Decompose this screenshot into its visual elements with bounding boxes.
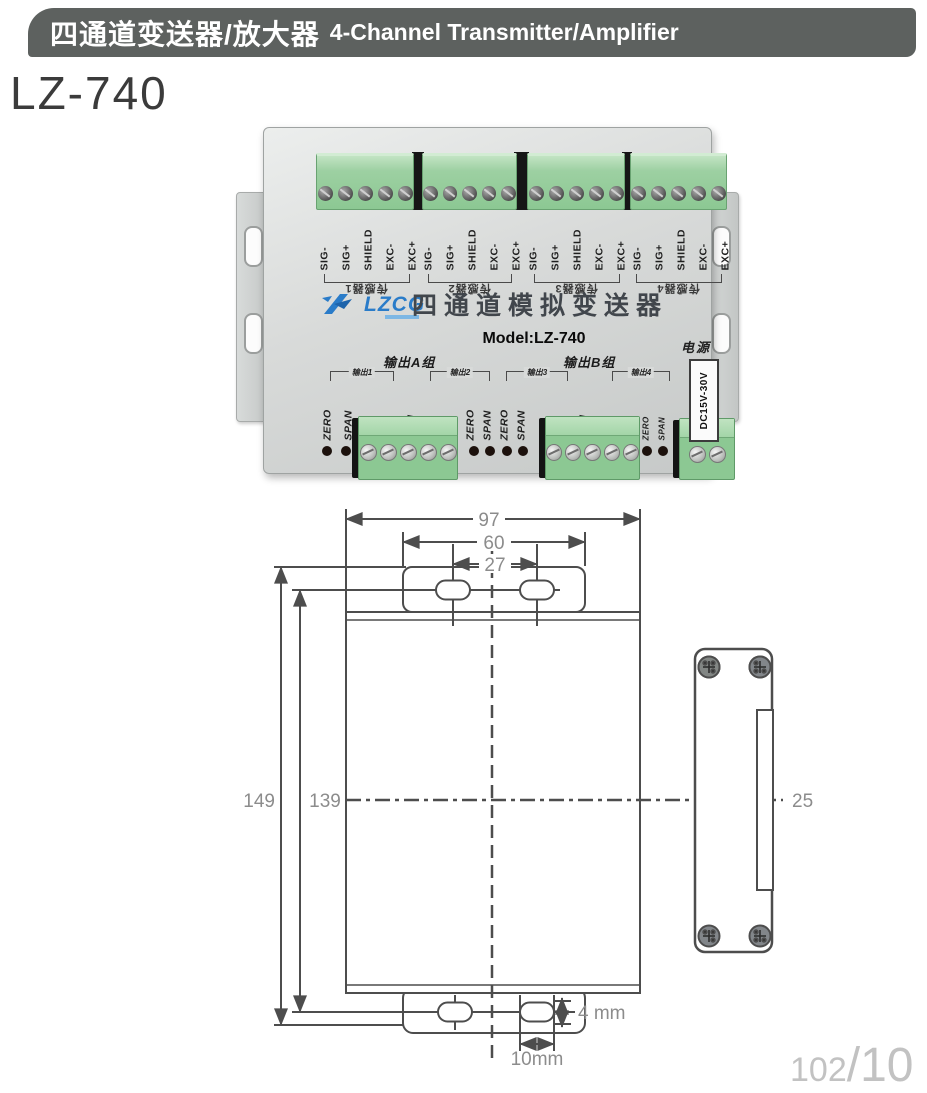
- trimpot-dot: [658, 446, 668, 456]
- terminal-screw: [400, 444, 417, 461]
- terminal-screw: [589, 186, 604, 201]
- page-number-total: /10: [847, 1039, 914, 1092]
- pin-label: SHIELD: [572, 207, 585, 271]
- terminal-flange: [546, 417, 639, 436]
- output-terminal-block-a: [358, 416, 458, 480]
- side-slot: [757, 710, 773, 890]
- terminal-screw: [689, 446, 706, 463]
- terminal-screw: [546, 444, 562, 461]
- header-title-zh: 四通道变送器/放大器: [50, 13, 320, 53]
- sensor-terminal-block-1: [316, 153, 414, 210]
- terminal-screw: [398, 186, 413, 201]
- mount-slot: [520, 581, 554, 600]
- output-group-b-label: 输出B组: [563, 352, 615, 371]
- trimpot-dot: [341, 446, 351, 456]
- trimpot-dot: [642, 446, 652, 456]
- pin-label: EXC+: [616, 207, 629, 271]
- pin-label: SIG+: [550, 207, 563, 271]
- pin-label: EXC+: [511, 207, 524, 271]
- panel-title: 四通道模拟变送器: [412, 286, 668, 322]
- pin-label: EXC+: [720, 207, 733, 271]
- terminal-screw: [604, 444, 620, 461]
- terminal-screw: [569, 186, 584, 201]
- dimension-drawing: 97 60 27 149 139 25 4 mm 10mm: [230, 495, 927, 1068]
- mount-slot: [436, 581, 470, 600]
- terminal-screw: [420, 444, 437, 461]
- terminal-screw: [631, 186, 646, 201]
- pin-label: SIG+: [445, 207, 458, 271]
- dim-25: 25: [792, 791, 813, 812]
- trimpot-dot: [518, 446, 528, 456]
- terminal-screw: [501, 186, 516, 201]
- terminal-flange: [359, 417, 457, 436]
- terminal-screw: [671, 186, 686, 201]
- terminal-screw: [482, 186, 497, 201]
- power-rating-box: DC15V-30V: [689, 359, 719, 442]
- dim-4mm: 4 mm: [578, 1003, 626, 1024]
- dim-97: 97: [478, 510, 499, 531]
- product-photo: SIG- SIG+ SHIELD EXC- EXC+ SIG- SIG+ SHI…: [236, 120, 737, 473]
- output-group-a-label: 输出A组: [383, 352, 435, 371]
- page-header-bar: 四通道变送器/放大器 4-Channel Transmitter/Amplifi…: [28, 8, 916, 57]
- mount-hole: [244, 313, 263, 354]
- terminal-screw: [651, 186, 666, 201]
- bottom-mount-tab: [403, 988, 585, 1033]
- pin-label: EXC-: [594, 207, 607, 271]
- pin-label: ZERO: [499, 377, 512, 441]
- trimpot-dot: [502, 446, 512, 456]
- terminal-screw: [338, 186, 353, 201]
- logo-glyph: [322, 290, 364, 320]
- mount-slot: [438, 1003, 472, 1022]
- terminal-screw: [565, 444, 581, 461]
- pin-label: EXC-: [698, 207, 711, 271]
- pin-label: SIG-: [319, 207, 332, 271]
- pin-label: ZERO: [322, 377, 335, 441]
- header-title-en: 4-Channel Transmitter/Amplifier: [330, 19, 679, 46]
- panel-model-line: Model:LZ-740: [414, 330, 654, 348]
- terminal-screw: [318, 186, 333, 201]
- terminal-screw: [711, 186, 726, 201]
- output-terminal-block-b: [545, 416, 640, 480]
- terminal-screw: [709, 446, 726, 463]
- pin-label: ZERO: [642, 401, 651, 441]
- mount-slot: [520, 1003, 554, 1022]
- pin-label: EXC-: [385, 207, 398, 271]
- pin-label: SHIELD: [363, 207, 376, 271]
- pin-label: EXC+: [407, 207, 420, 271]
- terminal-screw: [443, 186, 458, 201]
- pin-label: ZERO: [465, 377, 478, 441]
- trimpot-dot: [485, 446, 495, 456]
- pin-label: SPAN: [516, 377, 529, 441]
- pin-label: EXC-: [489, 207, 502, 271]
- page-number: 102/10: [790, 1038, 913, 1093]
- page-number-current: 102: [790, 1051, 847, 1089]
- dim-27: 27: [484, 555, 505, 576]
- terminal-screw: [549, 186, 564, 201]
- terminal-screw: [360, 444, 377, 461]
- terminal-screw: [423, 186, 438, 201]
- terminal-screw: [623, 444, 639, 461]
- device-body: SIG- SIG+ SHIELD EXC- EXC+ SIG- SIG+ SHI…: [263, 127, 712, 474]
- pin-label: SIG+: [341, 207, 354, 271]
- terminal-screw: [609, 186, 624, 201]
- terminal-screw: [380, 444, 397, 461]
- pin-label: SIG-: [632, 207, 645, 271]
- dim-149: 149: [243, 791, 275, 812]
- trimpot-dot: [322, 446, 332, 456]
- pin-label: SPAN: [658, 401, 667, 441]
- terminal-screw: [440, 444, 457, 461]
- terminal-screw: [462, 186, 477, 201]
- brand-logo: LZCG: [322, 288, 419, 322]
- terminal-screw: [529, 186, 544, 201]
- sensor-terminal-block-2: [422, 153, 517, 210]
- terminal-screw: [691, 186, 706, 201]
- dim-10mm: 10mm: [511, 1049, 564, 1068]
- pin-label: SIG-: [423, 207, 436, 271]
- model-heading: LZ-740: [10, 66, 168, 120]
- terminal-screw: [584, 444, 600, 461]
- sensor-terminal-block-4: [630, 153, 727, 210]
- terminal-screw: [358, 186, 373, 201]
- pin-label: SIG+: [654, 207, 667, 271]
- pin-label: SPAN: [482, 377, 495, 441]
- terminal-screw: [378, 186, 393, 201]
- dim-60: 60: [483, 533, 504, 554]
- pin-label: SIG-: [528, 207, 541, 271]
- pin-label: SHIELD: [676, 207, 689, 271]
- pin-label: SHIELD: [467, 207, 480, 271]
- power-label: 电源: [681, 337, 711, 356]
- mount-hole: [244, 226, 263, 267]
- sensor-terminal-block-3: [527, 153, 625, 210]
- mount-hole: [712, 313, 731, 354]
- trimpot-dot: [469, 446, 479, 456]
- power-rating: DC15V-30V: [699, 372, 710, 429]
- dim-139: 139: [309, 791, 341, 812]
